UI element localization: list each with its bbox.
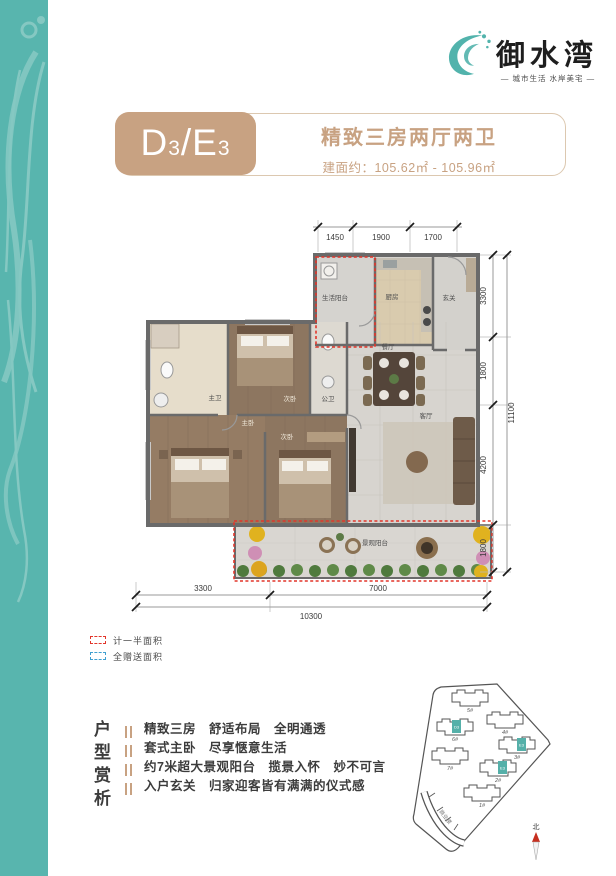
room-fills bbox=[148, 255, 491, 578]
wave-logo-icon bbox=[444, 26, 494, 80]
site-plan-map: 商业楼 D3 E3 E3 5# 4# 6# 3# 7# 2# 1# 北 bbox=[400, 680, 590, 870]
room-label-kitchen: 厨房 bbox=[386, 292, 399, 301]
sidebar-decoration bbox=[0, 0, 48, 876]
dim-right-2: 1800 bbox=[479, 362, 488, 380]
brand-tagline: — 城市生活 水岸美宅 — bbox=[494, 73, 602, 84]
header-titles: 精致三房两厅两卫 建面约：105.62㎡ - 105.96㎡ bbox=[256, 121, 562, 176]
divider-mark bbox=[125, 760, 134, 779]
highlight-label-e3: E3 bbox=[500, 766, 506, 771]
dim-right-4: 1800 bbox=[479, 539, 488, 557]
unit-letter-d: D bbox=[140, 122, 168, 163]
room-label-foyer: 玄关 bbox=[443, 293, 457, 302]
dim-top-3: 1700 bbox=[424, 233, 442, 242]
legend-label-gift-area: 全赠送面积 bbox=[113, 650, 163, 663]
room-label-public-bath: 公卫 bbox=[322, 395, 336, 403]
building-label-5: 5# bbox=[467, 708, 474, 714]
dim-bottom-2: 7000 bbox=[369, 584, 387, 593]
dim-top-2: 1900 bbox=[372, 233, 390, 242]
unit-badge: D3/E3 bbox=[115, 112, 256, 175]
wave-flourish-icon bbox=[0, 0, 48, 620]
dim-right-3: 4200 bbox=[479, 456, 488, 474]
building-label-7: 7# bbox=[447, 766, 454, 772]
building-label-1: 1# bbox=[479, 803, 486, 809]
area-subtitle: 建面约：105.62㎡ - 105.96㎡ bbox=[256, 157, 562, 176]
dim-right-total: 11100 bbox=[507, 402, 516, 424]
divider-marks bbox=[125, 722, 134, 816]
highlight-label-e3: E3 bbox=[519, 743, 525, 748]
building-5 bbox=[452, 690, 488, 706]
brand-logo: 御水湾 — 城市生活 水岸美宅 — bbox=[444, 24, 604, 94]
building-label-3: 3# bbox=[514, 755, 521, 761]
highlight-label-d3: D3 bbox=[454, 725, 460, 730]
brand-name: 御水湾 bbox=[496, 32, 598, 74]
room-label-view-balcony: 景观阳台 bbox=[362, 538, 388, 547]
building-1 bbox=[464, 785, 500, 801]
dim-bottom-total: 10300 bbox=[300, 612, 323, 621]
dimension-top: 1450 1900 1700 bbox=[313, 220, 462, 252]
building-7 bbox=[432, 748, 468, 764]
analysis-lines: 精致三房 舒适布局 全明通透 套式主卧 尽享惬意生活 约7米超大景观阳台 揽景入… bbox=[144, 720, 385, 816]
dim-top-1: 1450 bbox=[326, 233, 344, 242]
north-label: 北 bbox=[533, 823, 540, 831]
analysis-line-4: 入户玄关 归家迎客皆有满满的仪式感 bbox=[144, 777, 385, 796]
legend-row-gift-area: 全赠送面积 bbox=[90, 648, 163, 664]
building-label-6: 6# bbox=[452, 737, 459, 743]
divider-mark bbox=[125, 722, 134, 741]
room-label-bedroom2: 次卧 bbox=[284, 394, 298, 403]
divider-mark bbox=[125, 741, 134, 760]
building-label-2: 2# bbox=[494, 778, 502, 784]
building-label-4: 4# bbox=[502, 730, 509, 736]
room-label-laundry-balcony: 生活阳台 bbox=[322, 293, 348, 302]
divider-mark bbox=[125, 779, 134, 798]
analysis-line-1: 精致三房 舒适布局 全明通透 bbox=[144, 720, 385, 739]
analysis-title: 户型赏析 bbox=[88, 720, 113, 816]
page-title: 精致三房两厅两卫 bbox=[256, 121, 562, 150]
dim-bottom-1: 3300 bbox=[194, 584, 212, 593]
room-label-bedroom3: 次卧 bbox=[281, 432, 295, 441]
unit-number-e: 3 bbox=[218, 137, 231, 160]
room-label-master-bath: 主卫 bbox=[209, 393, 223, 402]
dim-right-1: 3300 bbox=[479, 287, 488, 305]
washing-machine bbox=[321, 263, 337, 279]
legend-row-half-area: 计一半面积 bbox=[90, 632, 163, 648]
floorplan-drawing: 生活阳台 厨房 玄关 餐厅 客厅 主卫 次卧 公卫 主卧 次卧 景观阳台 145… bbox=[85, 210, 595, 635]
north-arrow-icon: 北 bbox=[532, 823, 540, 860]
building-4 bbox=[487, 712, 523, 728]
legend: 计一半面积 全赠送面积 bbox=[90, 632, 163, 664]
unit-letter-e: E bbox=[192, 122, 218, 163]
analysis-section: 户型赏析 精致三房 舒适布局 全明通透 套式主卧 尽享惬意生活 约7米超大景观阳… bbox=[88, 712, 385, 816]
blue-dashed-swatch-icon bbox=[90, 652, 106, 660]
room-label-dining: 餐厅 bbox=[382, 342, 396, 351]
analysis-line-2: 套式主卧 尽享惬意生活 bbox=[144, 739, 385, 758]
room-label-master-bedroom: 主卧 bbox=[242, 418, 256, 427]
page: 御水湾 — 城市生活 水岸美宅 — D3/E3 精致三房两厅两卫 建面约：105… bbox=[0, 0, 616, 876]
unit-number-d: 3 bbox=[168, 137, 181, 160]
legend-label-half-area: 计一半面积 bbox=[113, 634, 163, 647]
room-label-living: 客厅 bbox=[420, 411, 434, 420]
dimension-bottom: 3300 7000 10300 bbox=[132, 582, 491, 621]
unit-slash: / bbox=[181, 122, 192, 163]
site-buildings: D3 E3 E3 5# 4# 6# 3# 7# 2# 1# bbox=[432, 690, 535, 809]
analysis-line-3: 约7米超大景观阳台 揽景入怀 妙不可言 bbox=[144, 758, 385, 777]
bedroom2-bed bbox=[237, 326, 293, 386]
red-dashed-swatch-icon bbox=[90, 636, 106, 644]
